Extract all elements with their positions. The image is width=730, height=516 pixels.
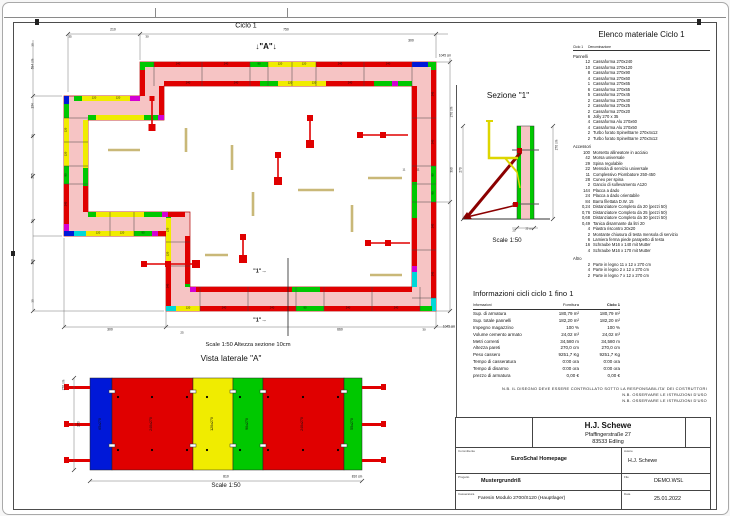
info-row-value: 0:00 ora [536,366,579,373]
plan-label: 120 [278,63,282,66]
material-name: Parte in legno 7 x 12 x 270 cm [593,273,649,278]
info-row: Tempo di casseratura0:00 ora0:00 ora [473,359,620,366]
plan-label: 300 [408,39,414,42]
side-view-label: 810 cm [352,475,362,478]
side-view-label: Vista laterale "A" [201,355,262,363]
note-line: N.B. IL DISEGNO DEVE ESSERE CONTROLLATO … [502,386,707,391]
side-view-label: 120x270 [211,417,215,431]
plan-label: 240 [270,307,274,310]
info-row-value: 270,0 cm [579,345,620,352]
plan-label: 120 [302,63,306,66]
side-view-label: Scale 1:50 [211,483,240,489]
autore-value: H.J. Schewe [628,458,657,464]
plan-label: 30 [422,329,425,332]
plan-label: 240 [186,82,190,85]
company-city: 83533 Edling [592,439,623,445]
info-row-label: Impegno magazzino [473,325,536,332]
plan-label: 190 [31,259,34,264]
info-row: Peso cassero9251,7 Kg9251,7 Kg [473,352,620,359]
autore-label: Autore [624,449,633,453]
progetto-label: Progetto [458,475,469,479]
plan-label: Ciclo 1 [235,23,256,30]
title-block-line [456,490,710,491]
title-block-line [685,418,686,447]
plan-label: Scale 1:50 Altezza sezione 10cm [205,343,290,349]
casseratura-value: Faresin Modulo 2700/S120 (Hauptlager) [478,496,565,501]
info-row: Metri correnti34,580 m34,580 m [473,339,620,346]
sezione-label: Scale 1:50 [492,238,521,244]
info-row: Tempo di disarmo0:00 ora0:00 ora [473,366,620,373]
side-view-label: 90x270 [246,418,250,430]
material-name: Schraube M16 x 170 mit Mutter [593,248,651,253]
material-list-groups: Pannelli12Cassaforma 270x24010Cassaforma… [573,54,710,278]
plan-label: 240 [432,224,435,228]
file-value: DEMO.WSL [654,478,683,484]
info-row-value: 182,20 m² [536,318,579,325]
info-row-label: prezzo di armatura [473,373,536,380]
plan-label: 90 [258,63,261,66]
sezione-label: Sezione "1" [487,92,529,100]
info-header-fornitura: Fornitura [536,302,579,309]
plan-label: 11 [417,169,420,172]
committente-label: Committente [458,449,475,453]
cycle-info-header: Informazioni Fornitura Ciclo 1 [473,302,620,310]
plan-label: 240 [394,307,398,310]
side-view-label: 55x270 [351,418,355,430]
plan-label: 240 [432,92,435,96]
info-header-ciclo: Ciclo 1 [579,302,620,309]
file-label: File [624,475,629,479]
side-view-label: 65x270 [99,418,103,430]
plan-label: 30 [145,36,148,39]
plan-label: 90 [432,174,435,177]
info-row-value: 9251,7 Kg [536,352,579,359]
side-view-drawing [64,376,386,483]
material-list: Elenco materiale Ciclo 1 Ciclo 1Denomina… [573,30,710,278]
plan-label: 30 [32,299,35,302]
info-row: Sup. di armatura180,79 m²180,79 m² [473,311,620,318]
cycle-info-table: Informazioni cicli ciclo 1 fino 1 Inform… [473,289,620,380]
material-qty: 2 [573,136,590,141]
plan-label: 20 [32,219,35,222]
info-row: Altezza pareti270,0 cm270,0 cm [473,345,620,352]
material-row: 4Schraube M16 x 170 mit Mutter [573,248,710,253]
plan-label: 270 cm [450,107,453,117]
side-view-label: 240x270 [150,417,154,431]
plan-label: 30 [32,134,35,137]
info-row-label: Tempo di casseratura [473,359,536,366]
plan-label: 255 [31,173,34,178]
plan-label: 660 [337,328,343,331]
plan-label: 240 [432,140,435,144]
plan-label: "1"→ [253,269,267,275]
side-view-label: 270 cm [62,380,65,390]
info-row-value: 0,00 € [536,373,579,380]
plan-label: 11 [403,169,406,172]
data-value: 25.01.2022 [654,496,681,502]
side-view-label: 240x270 [301,417,305,431]
plan-label: 90 [432,192,435,195]
side-view-label: 270 [77,421,80,427]
sezione-label: 270 cm [555,140,558,150]
plan-label: 750 [283,28,289,31]
plan-label: ↓"A"↓ [255,43,276,51]
note-line: N.B. OSSERVARE LE ISTRUZIONI D'USO [622,398,707,403]
plan-drawing [31,32,455,336]
plan-label: 240 [346,307,350,310]
plan-label: 90 [304,307,307,310]
plan-label: 120 [96,232,100,235]
info-row: Volume cemento armato24,02 m³24,02 m³ [473,332,620,339]
plan-label: 240 [222,307,226,310]
info-row-value: 0:00 ora [579,366,620,373]
plan-label: 120 [288,82,292,85]
info-row-label: Metri correnti [473,339,536,346]
plan-label: 120 [65,128,68,132]
sezione-label: 25 cm [525,229,532,232]
plan-label: 120 [312,82,316,85]
material-list-columns: Ciclo 1Denominazione [573,45,710,51]
plan-label: 240 [338,63,342,66]
cycle-info-title: Informazioni cicli ciclo 1 fino 1 [473,289,620,298]
info-row-value: 100 % [536,325,579,332]
info-row-label: Volume cemento armato [473,332,536,339]
title-block-line [532,418,533,447]
plan-label: 390 [450,167,453,172]
plan-label: "1"→ [253,318,267,324]
plan-label: 240 [167,284,170,288]
plan-label: 35 [68,36,71,39]
info-row-value: 34,580 m [536,339,579,346]
info-row-value: 100 % [579,325,620,332]
info-row-value: 24,02 m³ [579,332,620,339]
plan-label: 1045 cm [439,54,451,57]
info-row-label: Sup. di armatura [473,311,536,318]
info-row: prezzo di armatura0,00 €0,00 € [473,373,620,380]
note-line: N.B. OSSERVARE LE ISTRUZIONI D'USO [622,392,707,397]
info-row: Impegno magazzino100 %100 % [473,325,620,332]
info-row-value: 182,20 m² [579,318,620,325]
info-row-label: Sup. totale pannelli [473,318,536,325]
sezione-label: 25 [513,231,516,234]
plan-label: 90 [65,174,68,177]
info-row-value: 34,580 m [579,339,620,346]
plan-label: 120 [186,307,190,310]
material-list-title: Elenco materiale Ciclo 1 [573,30,710,39]
plan-label: 240 [224,63,228,66]
material-name: Turbo forato Spine/Barre 270x3x12 [593,136,658,141]
plan-label: 240 [386,63,390,66]
info-header-label: Informazioni [473,302,536,309]
title-block: H.J. Schewe Pfaffingerstraße 27 83533 Ed… [455,417,711,510]
title-block-line [621,447,622,509]
company-name: H.J. Schewe [585,421,632,430]
info-row-value: 270,0 cm [536,345,579,352]
material-row: 2Parte in legno 7 x 12 x 270 cm [573,273,710,278]
progetto-value: Mustergrundriß [481,478,521,484]
plan-label: 240 [348,82,352,85]
plan-label: 120 [116,97,120,100]
plan-label: 240 [432,272,435,276]
material-col-denominazione: Denominazione [588,45,611,49]
committente-value: EuroSchal Homepage [511,456,567,462]
plan-label: 210 [110,28,116,31]
plan-label: 134 [31,103,34,108]
plan-label: 90 [142,232,145,235]
plan-label: 30 [32,43,35,46]
cycle-info-rows: Sup. di armatura180,79 m²180,79 m²Sup. t… [473,311,620,380]
plan-label: 240 [234,82,238,85]
info-row-value: 0,00 € [579,373,620,380]
info-row-value: 180,79 m² [536,311,579,318]
info-row-label: Tempo di disarmo [473,366,536,373]
plan-label: 25 [180,332,183,335]
plan-label: 240 [176,63,180,66]
plan-label: 120 [167,228,170,232]
casseratura-label: Casseratura [458,492,474,496]
info-row-value: 9251,7 Kg [579,352,620,359]
drawing-sheet: Ciclo 1↓"A"↓21035307503001045 cm30694 cm… [0,0,730,516]
side-view-label: 810 [223,475,229,478]
info-row-value: 180,79 m² [579,311,620,318]
plan-label: 300 [107,328,113,331]
info-row-value: 0:00 ora [579,359,620,366]
plan-label: 694 cm [31,59,34,69]
data-label: Data [624,492,630,496]
info-row-value: 24,02 m³ [536,332,579,339]
info-row-label: Altezza pareti [473,345,536,352]
plan-label: 120 [167,252,170,256]
title-block-line [456,447,710,448]
info-row-label: Peso cassero [473,352,536,359]
material-col-ciclo: Ciclo 1 [573,45,583,49]
plan-label: 120 [92,97,96,100]
sezione-drawing [461,121,555,230]
info-row: Sup. totale pannelli182,20 m²182,20 m² [473,318,620,325]
material-row: 2Turbo forato Spine/Barre 270x3x12 [573,136,710,141]
sezione-label: 270 [459,167,462,172]
plan-label: 1045 cm [443,325,455,328]
info-row-value: 0:00 ora [536,359,579,366]
title-block-line [456,473,710,474]
material-qty: 2 [573,273,590,278]
company-street: Pfaffingerstraße 27 [585,432,631,438]
material-qty: 4 [573,248,590,253]
plan-label: 240 [65,202,68,206]
plan-label: 120 [65,152,68,156]
plan-label: 120 [120,232,124,235]
